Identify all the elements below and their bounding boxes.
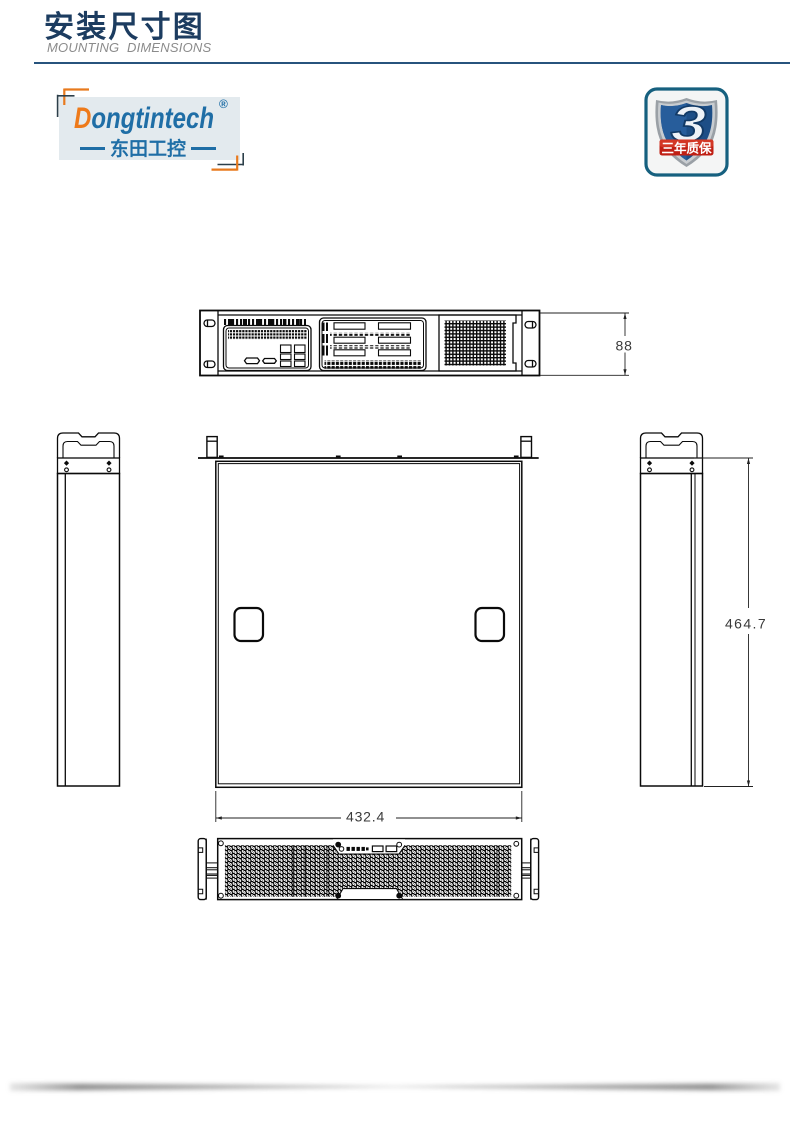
svg-text:88: 88	[616, 338, 633, 354]
svg-text:432.4: 432.4	[346, 809, 385, 825]
svg-text:464.7: 464.7	[725, 616, 767, 632]
